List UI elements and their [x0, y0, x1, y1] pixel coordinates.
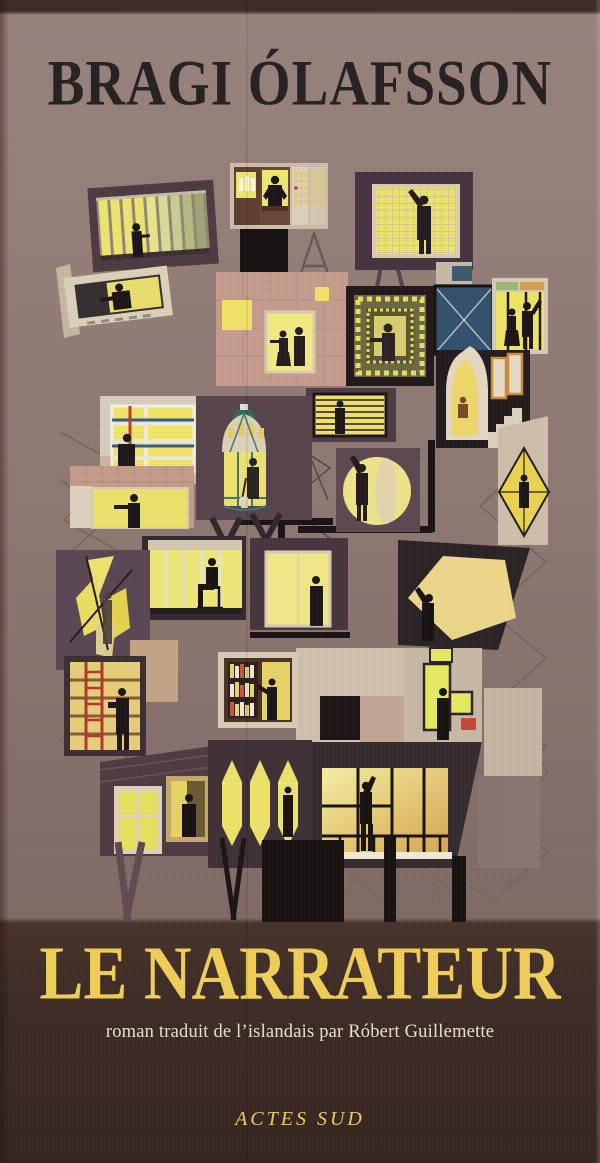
small-blocks: [436, 262, 472, 284]
cover-crease: [246, 0, 248, 1163]
subtitle: roman traduit de l’islandais par Róbert …: [0, 1022, 600, 1043]
room-lantern: [196, 396, 312, 520]
person-silhouette: [103, 593, 112, 645]
room-mandala-window: [346, 286, 434, 386]
room-grid-window: [355, 172, 473, 270]
room-blinds-window: [306, 388, 396, 442]
publisher-name: ACTES SUD: [0, 1108, 600, 1131]
book-title: LE NARRATEUR: [0, 936, 600, 1013]
room-bookshelf-window: [218, 652, 298, 728]
room-yellow-door: [250, 538, 348, 630]
left-edge-shadow: [0, 0, 9, 1163]
right-edge-highlight: [595, 0, 600, 1163]
room-diamond-window: [498, 416, 549, 545]
room-pentagon-window: [398, 540, 530, 650]
room-circle-window: [336, 448, 420, 532]
room-cottage-windows: [100, 745, 220, 856]
cream-blocks: [296, 648, 420, 742]
room-couple-window: [492, 278, 548, 354]
room-pink-doorway: [216, 272, 348, 386]
book-cover: BRAGI ÓLAFSSON: [0, 0, 600, 1163]
books: [230, 664, 254, 716]
room-denim-cross: [435, 286, 493, 354]
room-dormer: [56, 264, 173, 338]
room-ladder-bookshelf: [64, 656, 146, 756]
room-cabinet: [230, 163, 328, 279]
room-slatted-windows: [87, 180, 219, 273]
room-seated-figure: [142, 536, 246, 620]
room-tiled-counter: [70, 466, 194, 528]
